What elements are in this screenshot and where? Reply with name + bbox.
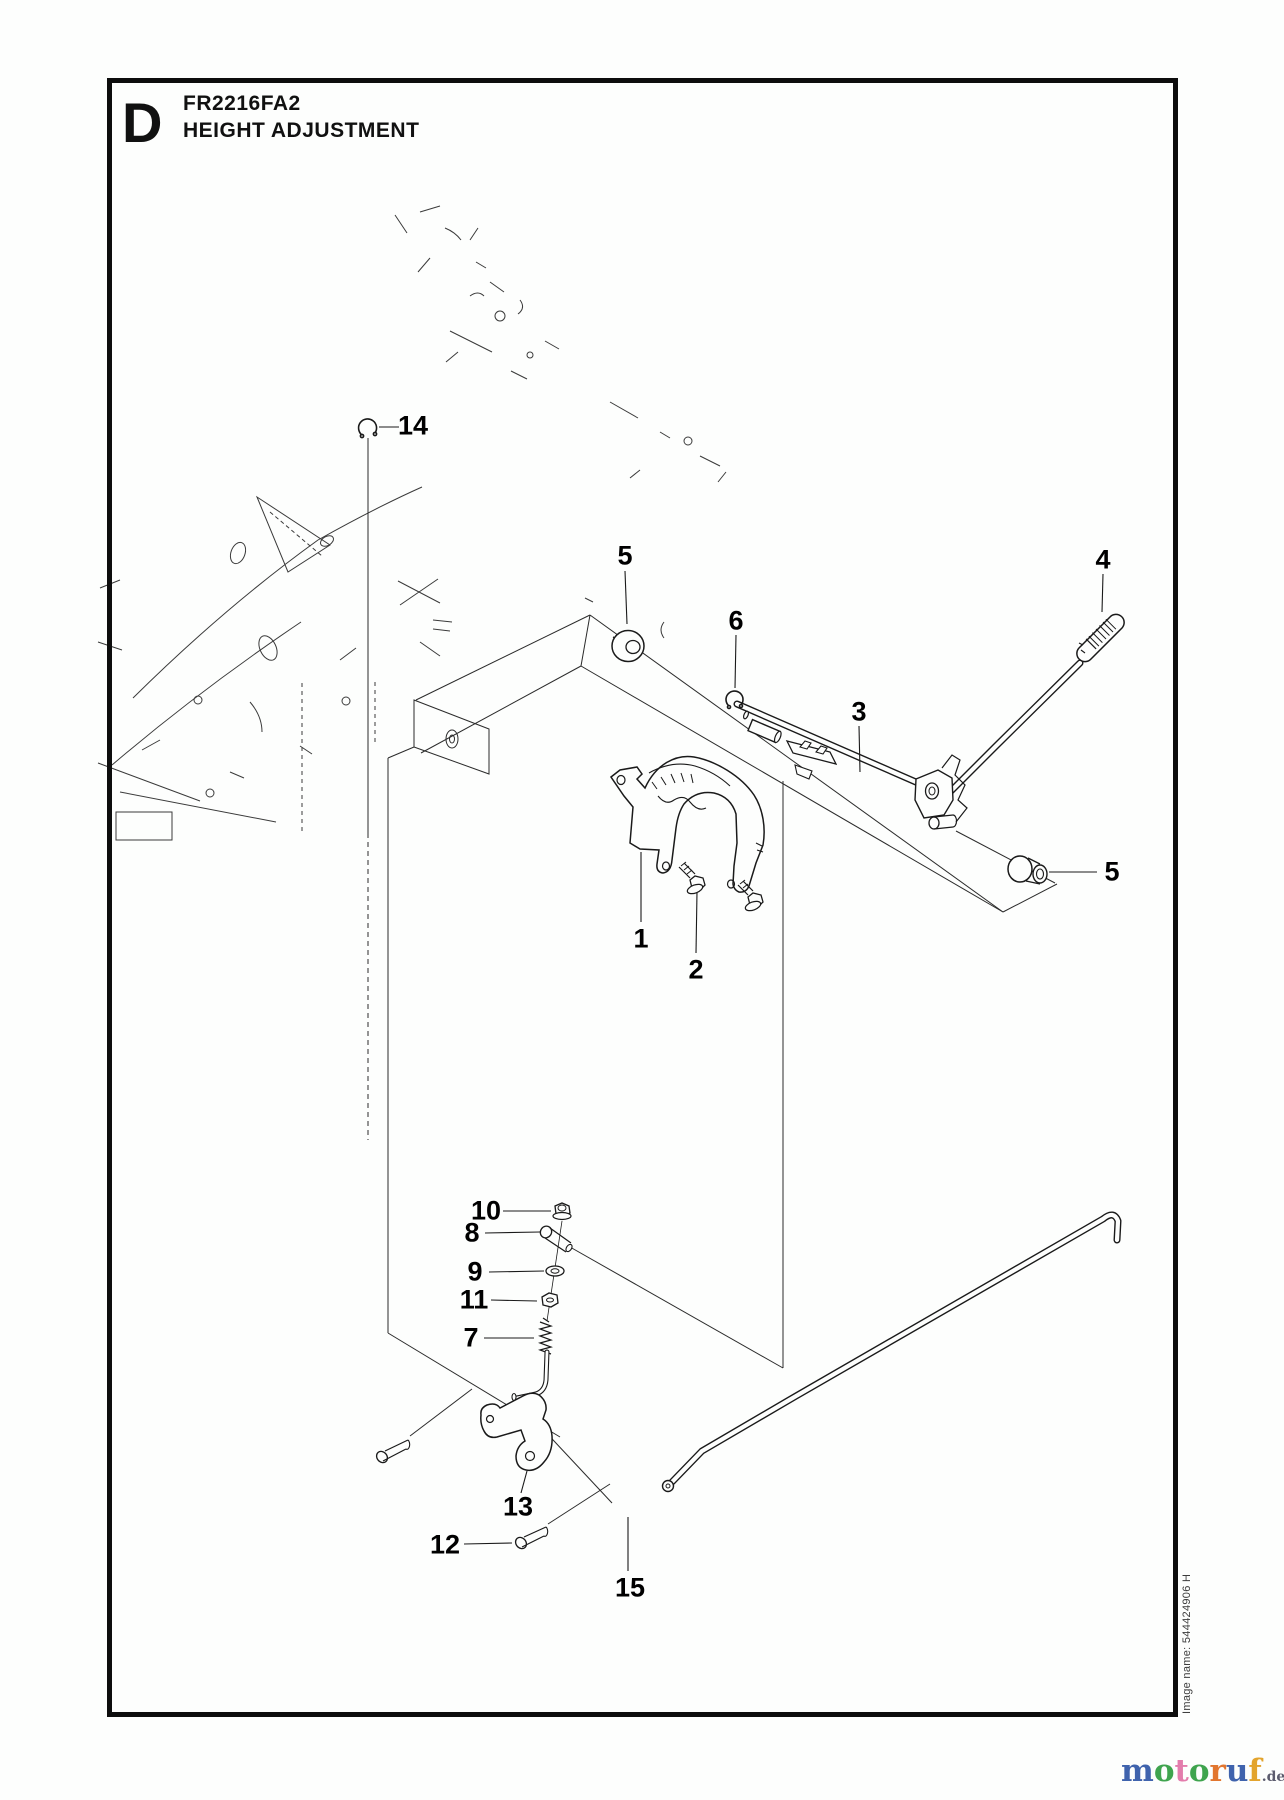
part-callout-4: 4	[1095, 545, 1110, 576]
part-callout-13: 13	[503, 1492, 533, 1523]
logo-letter: o	[1189, 1756, 1210, 1787]
image-name-caption: Image name: 544424906 H	[1181, 1574, 1193, 1714]
model-number: FR2216FA2	[183, 92, 301, 116]
part-callout-1: 1	[633, 924, 648, 955]
logo-letter: o	[1154, 1756, 1175, 1787]
part-callout-14: 14	[398, 411, 428, 442]
plate-letter: D	[122, 90, 162, 155]
part-callout-15: 15	[615, 1573, 645, 1604]
part-callout-8: 8	[464, 1218, 479, 1249]
logo-letter: r	[1210, 1756, 1226, 1787]
part-callout-5: 5	[1104, 857, 1119, 888]
logo-letter: u	[1226, 1756, 1249, 1787]
part-callout-5: 5	[617, 541, 632, 572]
part-callout-9: 9	[467, 1257, 482, 1288]
logo-letter: f	[1248, 1756, 1261, 1787]
part-callout-11: 11	[460, 1285, 489, 1316]
motoruf-logo: motoruf.de	[1121, 1756, 1284, 1787]
part-callout-3: 3	[851, 697, 866, 728]
logo-letter: t	[1175, 1756, 1189, 1787]
section-title: HEIGHT ADJUSTMENT	[183, 119, 419, 143]
logo-suffix: .de	[1262, 1769, 1284, 1785]
drawing-border	[107, 78, 1178, 1717]
part-callout-12: 12	[430, 1530, 460, 1561]
part-callout-7: 7	[463, 1323, 478, 1354]
part-callout-2: 2	[688, 955, 703, 986]
logo-letter: m	[1121, 1756, 1154, 1787]
part-callout-6: 6	[728, 606, 743, 637]
parts-diagram-page: D FR2216FA2 HEIGHT ADJUSTMENT 1456345121…	[0, 0, 1284, 1800]
